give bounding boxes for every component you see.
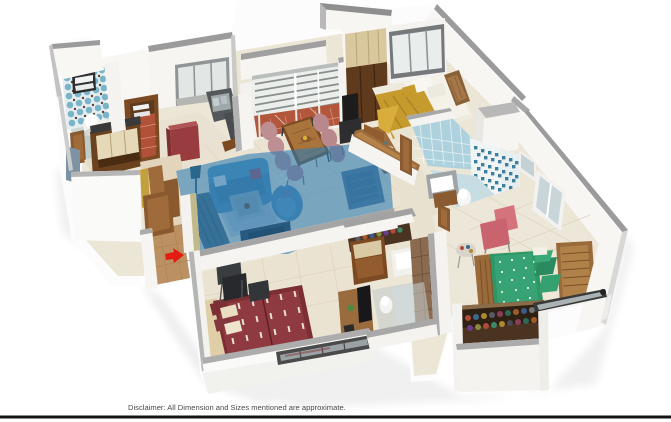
svg-text:Disclaimer: All Dimension and: Disclaimer: All Dimension and Sizes ment… <box>128 403 346 412</box>
